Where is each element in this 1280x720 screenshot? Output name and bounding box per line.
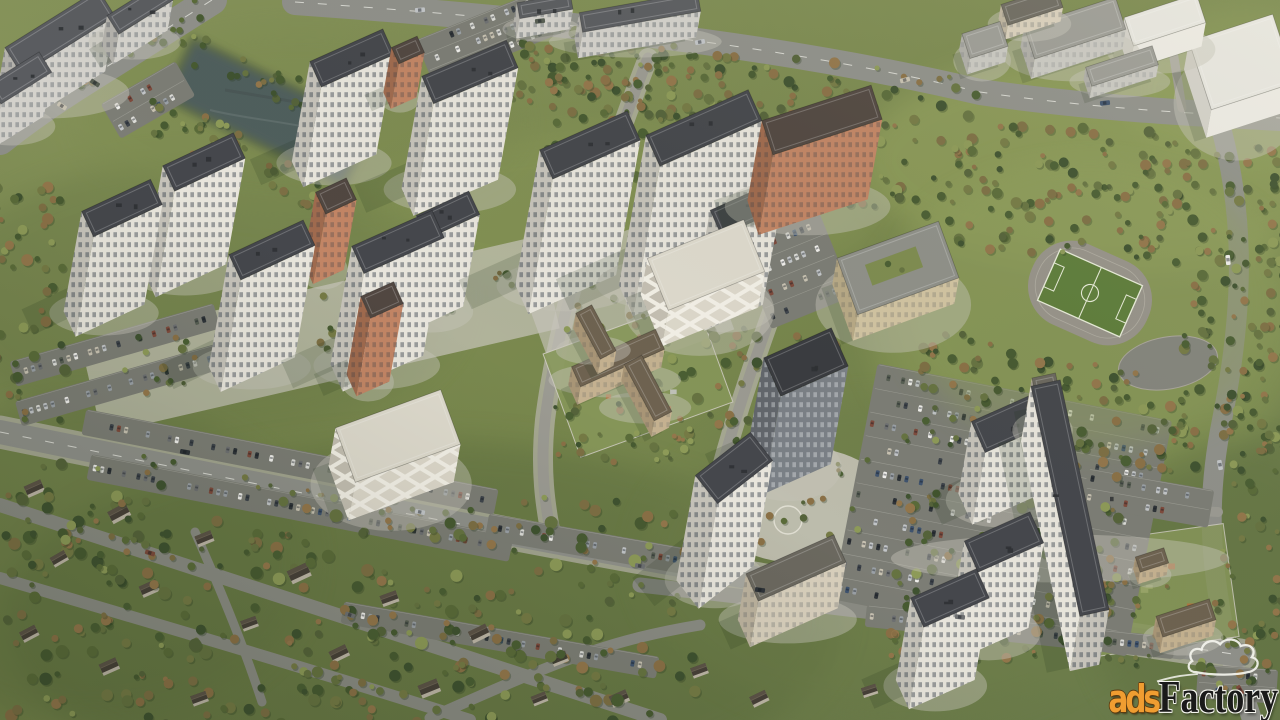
aerial-render: adsFactory (0, 0, 1280, 720)
scene-canvas (0, 0, 1280, 720)
layer-lighting-overlay (0, 0, 1280, 720)
